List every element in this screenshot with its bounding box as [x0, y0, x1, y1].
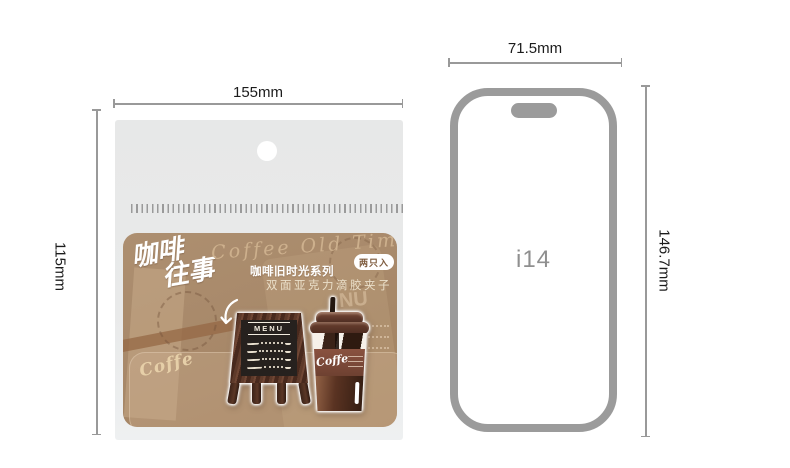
- phone-height-label: 146.7mm: [656, 211, 673, 311]
- dynamic-island: [511, 103, 557, 118]
- menu-line: [247, 337, 291, 345]
- board-leg: [252, 381, 261, 404]
- card-title-calligraphy: 咖啡 往事: [129, 233, 215, 294]
- cup-sleeve: Coffe: [312, 349, 367, 376]
- phone-height-dimension-line: [645, 85, 647, 437]
- cup-body: Coffe: [312, 333, 367, 411]
- board-leg: [277, 381, 286, 404]
- package-height-dimension-line: [96, 109, 98, 435]
- menu-line: [247, 345, 291, 353]
- coffee-cup-clip-sticker: Coffe: [308, 297, 370, 412]
- cup-lid-rim: [310, 322, 369, 334]
- product-size-diagram: 155mm 115mm 71.5mm 146.7mm Coffe NU 咖: [0, 0, 790, 468]
- phone-width-label: 71.5mm: [448, 40, 622, 57]
- packaging-bag: Coffe NU 咖啡 往事 Coffee Old Time 两只入 咖啡旧时光…: [115, 120, 403, 440]
- sleeve-text-line: [348, 366, 363, 367]
- phone-model-label: i14: [516, 246, 551, 274]
- menu-header-text: MENU: [248, 322, 290, 335]
- chalkboard: MENU: [241, 320, 297, 376]
- phone-size-reference: i14: [450, 88, 617, 432]
- card-title-line2: 往事: [160, 256, 216, 289]
- sleeve-text-line: [348, 356, 363, 357]
- phone-width-dimension-line: [448, 62, 622, 64]
- menu-board-frame: MENU: [230, 313, 308, 383]
- package-height-label: 115mm: [52, 221, 69, 313]
- tear-perforation: [131, 204, 403, 213]
- cup-sleeve-label: Coffe: [315, 352, 349, 369]
- board-leg: [227, 380, 240, 404]
- product-type-text: 双面亚克力滴胶夹子: [266, 277, 392, 293]
- quantity-badge: 两只入: [354, 254, 394, 270]
- package-width-dimension-line: [113, 103, 403, 105]
- menu-line: [247, 353, 291, 361]
- product-card: Coffe NU 咖啡 往事 Coffee Old Time 两只入 咖啡旧时光…: [123, 233, 397, 427]
- sleeve-text-line: [348, 361, 363, 362]
- hang-hole: [257, 141, 277, 161]
- coffee-liquid: [312, 376, 367, 411]
- menu-board-clip-sticker: MENU: [221, 311, 317, 407]
- cup-highlight: [355, 382, 360, 404]
- menu-line: [247, 361, 291, 369]
- package-width-label: 155mm: [113, 84, 403, 101]
